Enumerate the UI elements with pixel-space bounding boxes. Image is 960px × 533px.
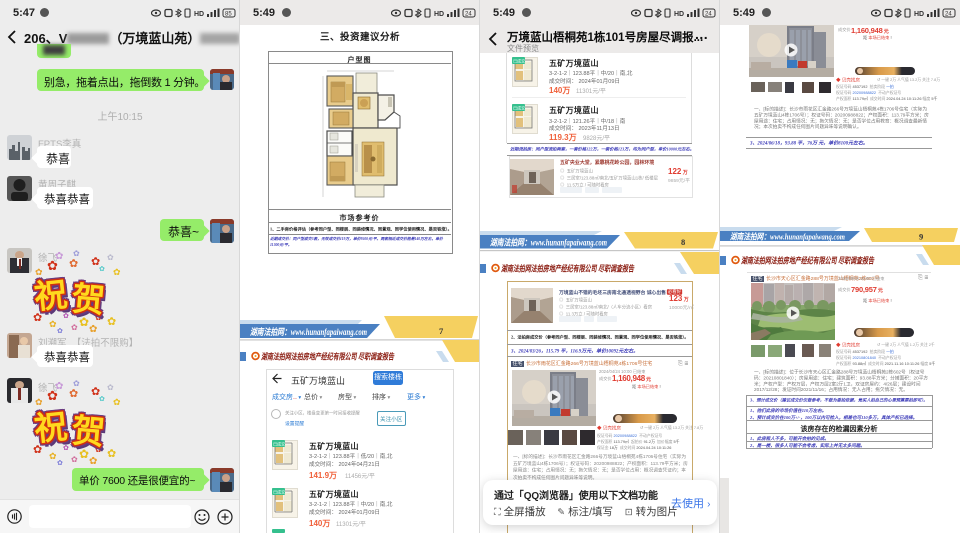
svg-text:湖南法拍网：www.hunanfapaiwang.com: 湖南法拍网：www.hunanfapaiwang.com	[730, 232, 845, 242]
svg-text:24: 24	[465, 12, 472, 18]
svg-text:湖南法拍网：www.hunanfapaiwang.com: 湖南法拍网：www.hunanfapaiwang.com	[490, 238, 607, 248]
svg-text:HD: HD	[194, 11, 204, 18]
svg-text:9: 9	[919, 232, 923, 242]
svg-text:24: 24	[705, 12, 712, 18]
svg-text:85: 85	[225, 12, 232, 18]
svg-text:8: 8	[681, 237, 685, 247]
svg-text:HD: HD	[674, 11, 684, 18]
svg-text:HD: HD	[914, 11, 924, 18]
svg-text:湖南法拍网法拍房地产经纪有限公司 尽职调查报告: 湖南法拍网法拍房地产经纪有限公司 尽职调查报告	[261, 352, 395, 362]
svg-text:湖南法拍网：www.hunanfapaiwang.com: 湖南法拍网：www.hunanfapaiwang.com	[250, 327, 367, 337]
svg-text:湖南法拍网法拍房地产经纪有限公司 尽职调查报告: 湖南法拍网法拍房地产经纪有限公司 尽职调查报告	[501, 264, 635, 274]
svg-text:HD: HD	[434, 11, 444, 18]
svg-text:24: 24	[945, 12, 952, 18]
svg-text:湖南法拍网法拍房地产经纪有限公司 尽职调查报告: 湖南法拍网法拍房地产经纪有限公司 尽职调查报告	[741, 256, 875, 266]
